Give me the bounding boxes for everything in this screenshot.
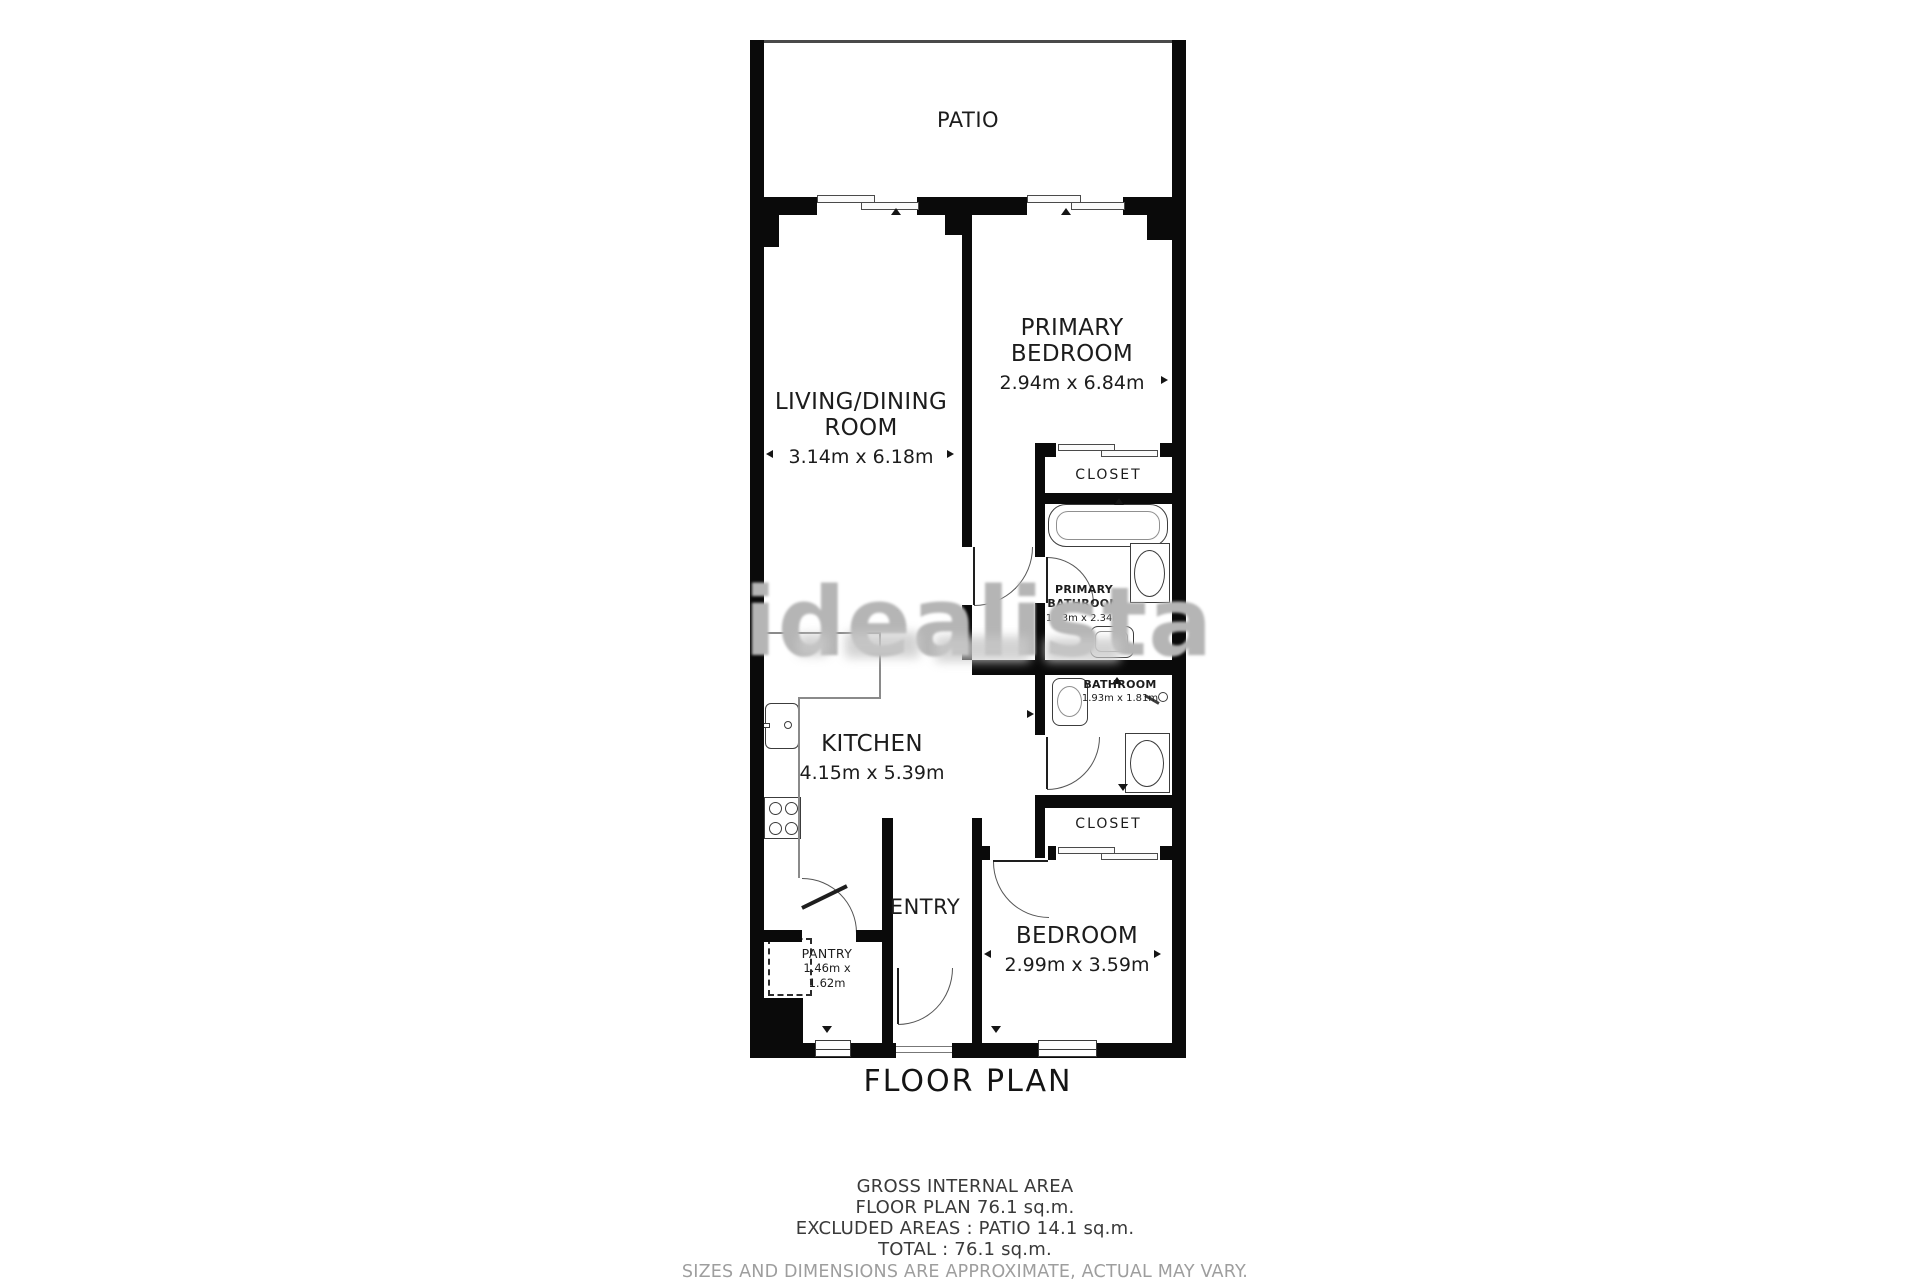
wall-pier [1147, 215, 1172, 240]
room-name: ENTRY [875, 895, 975, 919]
wall [1035, 795, 1186, 808]
dimension-arrow [1027, 710, 1034, 718]
toilet-bowl [1130, 740, 1164, 787]
sliding-door-panel [1071, 202, 1125, 210]
wall [1035, 493, 1186, 504]
exterior-wall [1172, 40, 1186, 1058]
door-arc [1047, 737, 1100, 790]
door-leaf [993, 860, 1048, 862]
wall [1123, 197, 1172, 215]
watermark-blur-overlay [845, 632, 920, 658]
bathtub-inner [1056, 511, 1160, 540]
sliding-door-panel [1101, 450, 1158, 457]
exterior-wall [750, 40, 764, 1058]
summary-line-total: TOTAL : 76.1 sq.m. [560, 1239, 1370, 1260]
door-arc [993, 862, 1049, 918]
wall [882, 818, 893, 1043]
room-name: PRIMARY BEDROOM [997, 316, 1147, 368]
room-label-living-dining: LIVING/DINING ROOM 3.14m x 6.18m [755, 390, 967, 468]
dimension-arrow [1161, 376, 1168, 384]
room-label-patio: PATIO [868, 108, 1068, 132]
room-dims: 4.15m x 5.39m [772, 762, 972, 784]
sliding-door-panel [861, 202, 919, 210]
plan-title: FLOOR PLAN [750, 1064, 1186, 1099]
door-leaf [1046, 737, 1048, 789]
room-label-kitchen: KITCHEN 4.15m x 5.39m [772, 732, 972, 784]
room-name: CLOSET [1045, 467, 1172, 483]
dimension-arrow [1118, 784, 1128, 791]
room-name: PATIO [868, 108, 1068, 132]
dimension-arrow [991, 1026, 1001, 1033]
wall [856, 930, 882, 942]
door-arc [898, 968, 953, 1025]
summary-line-excluded: EXCLUDED AREAS : PATIO 14.1 sq.m. [560, 1218, 1370, 1239]
floor-plan-page: PATIO LIVING/DINING ROOM 3.14m x 6.18m P… [0, 0, 1920, 1280]
watermark-blur-overlay [1045, 638, 1120, 662]
room-name: PANTRY [792, 946, 862, 961]
dimension-arrow [1114, 498, 1124, 505]
room-label-closet-bottom: CLOSET [1045, 816, 1172, 832]
summary-line-floor-plan: FLOOR PLAN 76.1 sq.m. [560, 1197, 1370, 1218]
dimension-arrow [891, 208, 901, 215]
summary-line-gross-area: GROSS INTERNAL AREA [560, 1176, 1370, 1197]
sliding-door-panel [1101, 853, 1158, 860]
area-summary: GROSS INTERNAL AREA FLOOR PLAN 76.1 sq.m… [560, 1176, 1370, 1280]
wall [1035, 455, 1045, 557]
room-label-pantry: PANTRY 1.46m x 1.62m [792, 946, 862, 991]
room-name: CLOSET [1045, 816, 1172, 832]
door-leaf [897, 968, 899, 1024]
room-dims: 2.99m x 3.59m [977, 954, 1177, 976]
room-label-bathroom: BATHROOM 1.93m x 1.81m [1078, 678, 1162, 704]
dimension-arrow [822, 1026, 832, 1033]
room-name: BATHROOM [1078, 678, 1162, 692]
wall [764, 197, 817, 215]
wall [764, 930, 802, 942]
floor-plan-drawing: PATIO LIVING/DINING ROOM 3.14m x 6.18m P… [750, 40, 1186, 1058]
room-label-bedroom: BEDROOM 2.99m x 3.59m [977, 924, 1177, 976]
room-dims: 2.94m x 6.84m [997, 372, 1147, 394]
entry-threshold [896, 1043, 952, 1058]
wall-pier [764, 215, 779, 247]
window [815, 1040, 851, 1057]
room-label-primary-bedroom: PRIMARY BEDROOM 2.94m x 6.84m [997, 316, 1147, 394]
stove-icon [764, 797, 801, 839]
watermark-blur-overlay [935, 636, 1030, 662]
wall-corner-block [750, 998, 803, 1045]
room-dims: 3.14m x 6.18m [755, 446, 967, 468]
counter-edge-line [798, 697, 881, 699]
drain-dot [784, 721, 792, 729]
disclaimer: SIZES AND DIMENSIONS ARE APPROXIMATE, AC… [560, 1262, 1370, 1280]
watermark-blur-overlay [798, 634, 828, 656]
room-dims: 1.46m x 1.62m [792, 961, 862, 991]
counter-edge-line [798, 699, 800, 878]
wall [962, 215, 972, 547]
window [1038, 1040, 1097, 1057]
wall [917, 197, 1027, 215]
room-name: BEDROOM [977, 924, 1177, 950]
dimension-arrow [1061, 208, 1071, 215]
room-name: KITCHEN [772, 732, 972, 758]
room-label-closet-top: CLOSET [1045, 467, 1172, 483]
room-label-entry: ENTRY [875, 895, 975, 919]
room-name: LIVING/DINING ROOM [755, 390, 967, 442]
patio-edge-line [750, 40, 1186, 43]
room-dims: 1.93m x 1.81m [1078, 693, 1162, 704]
